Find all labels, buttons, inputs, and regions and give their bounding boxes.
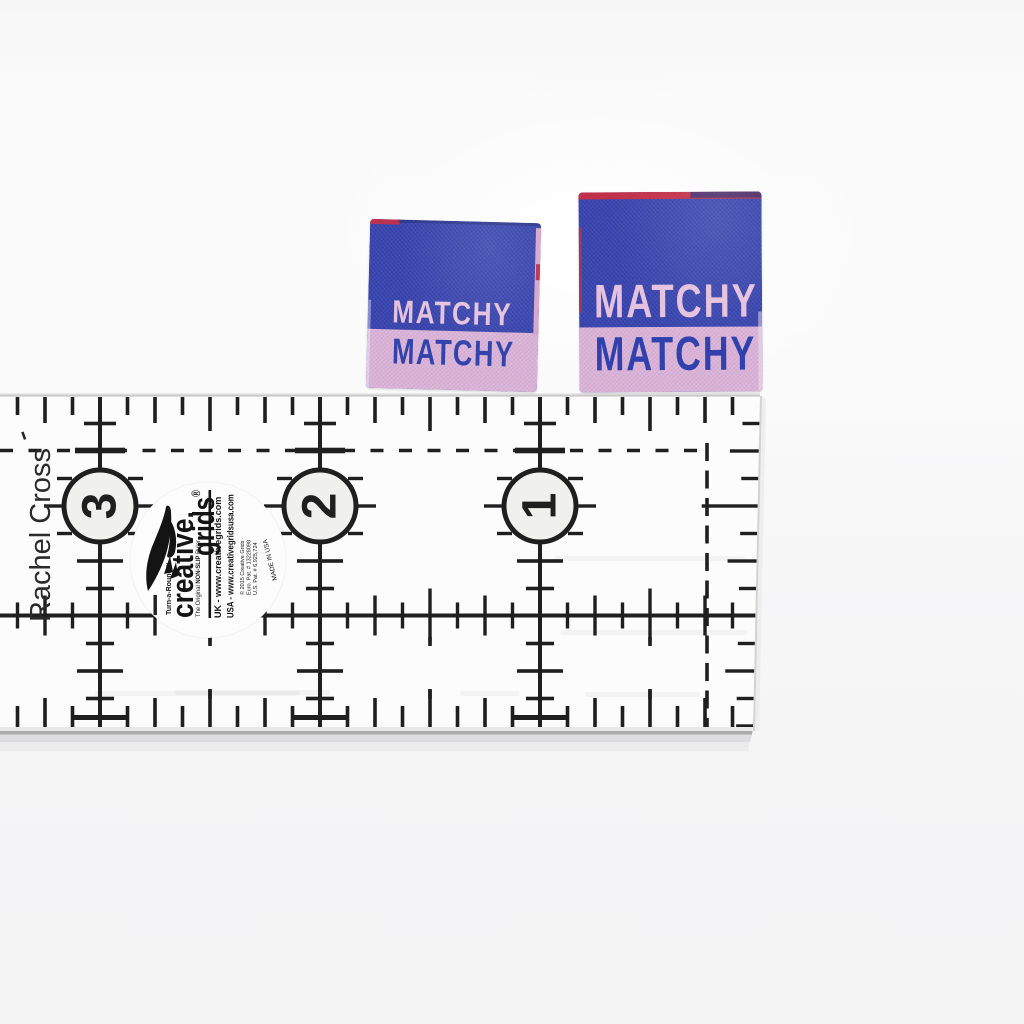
svg-text:U.S. Pat. # 6,925,724: U.S. Pat. # 6,925,724 [253, 542, 259, 595]
svg-text:© 2015 Creative Grids ·: © 2015 Creative Grids · [239, 537, 246, 595]
svg-text:UK - www.creativegrids.com: UK - www.creativegrids.com [213, 497, 223, 618]
svg-text:Rachel Cross: Rachel Cross [25, 448, 57, 622]
svg-text:1: 1 [514, 493, 567, 520]
svg-text:USA - www.creativegridsusa.com: USA - www.creativegridsusa.com [225, 494, 236, 618]
svg-text:3: 3 [74, 493, 127, 520]
svg-text:The Original NON-SLIP Ruler: The Original NON-SLIP Ruler [195, 540, 202, 617]
svg-text:Euro. Pat. # 13228098: Euro. Pat. # 13228098 [247, 540, 253, 595]
svg-text:2: 2 [294, 493, 347, 520]
